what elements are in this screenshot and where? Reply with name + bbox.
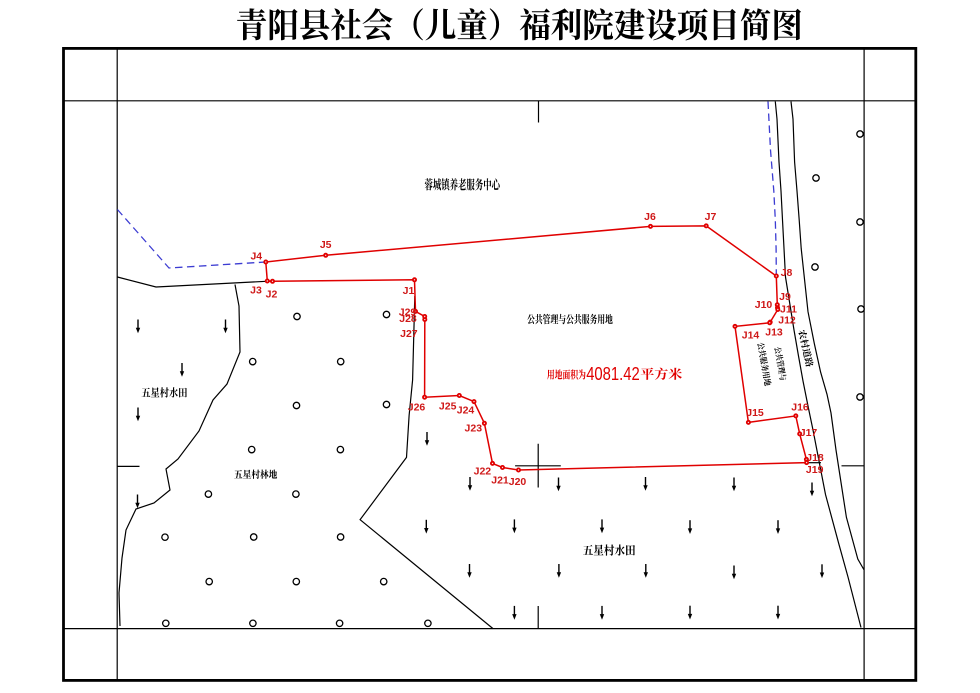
svg-text:J2: J2 <box>266 288 278 300</box>
svg-text:J21: J21 <box>491 474 509 486</box>
svg-text:J16: J16 <box>791 402 809 414</box>
svg-text:4081.42: 4081.42 <box>586 364 640 384</box>
svg-text:J12: J12 <box>778 315 796 327</box>
svg-text:J4: J4 <box>250 251 262 263</box>
svg-text:J15: J15 <box>746 407 764 419</box>
svg-text:J22: J22 <box>474 466 492 478</box>
svg-text:J24: J24 <box>457 405 475 417</box>
svg-text:J3: J3 <box>250 284 262 296</box>
svg-text:J14: J14 <box>742 330 760 342</box>
svg-text:J27: J27 <box>400 328 418 340</box>
svg-text:J26: J26 <box>408 402 426 414</box>
svg-text:J19: J19 <box>806 464 824 476</box>
svg-text:J29: J29 <box>399 307 417 319</box>
svg-text:J25: J25 <box>439 400 457 412</box>
svg-text:J5: J5 <box>320 239 332 251</box>
svg-text:J17: J17 <box>800 427 818 439</box>
svg-text:J9: J9 <box>779 291 791 303</box>
svg-text:J1: J1 <box>403 285 415 297</box>
svg-text:J10: J10 <box>755 299 773 311</box>
svg-text:J13: J13 <box>765 327 783 339</box>
svg-text:J6: J6 <box>644 211 656 223</box>
svg-text:J23: J23 <box>465 422 483 434</box>
svg-text:J7: J7 <box>705 211 717 223</box>
svg-text:J20: J20 <box>509 476 527 488</box>
svg-text:J8: J8 <box>781 267 793 279</box>
